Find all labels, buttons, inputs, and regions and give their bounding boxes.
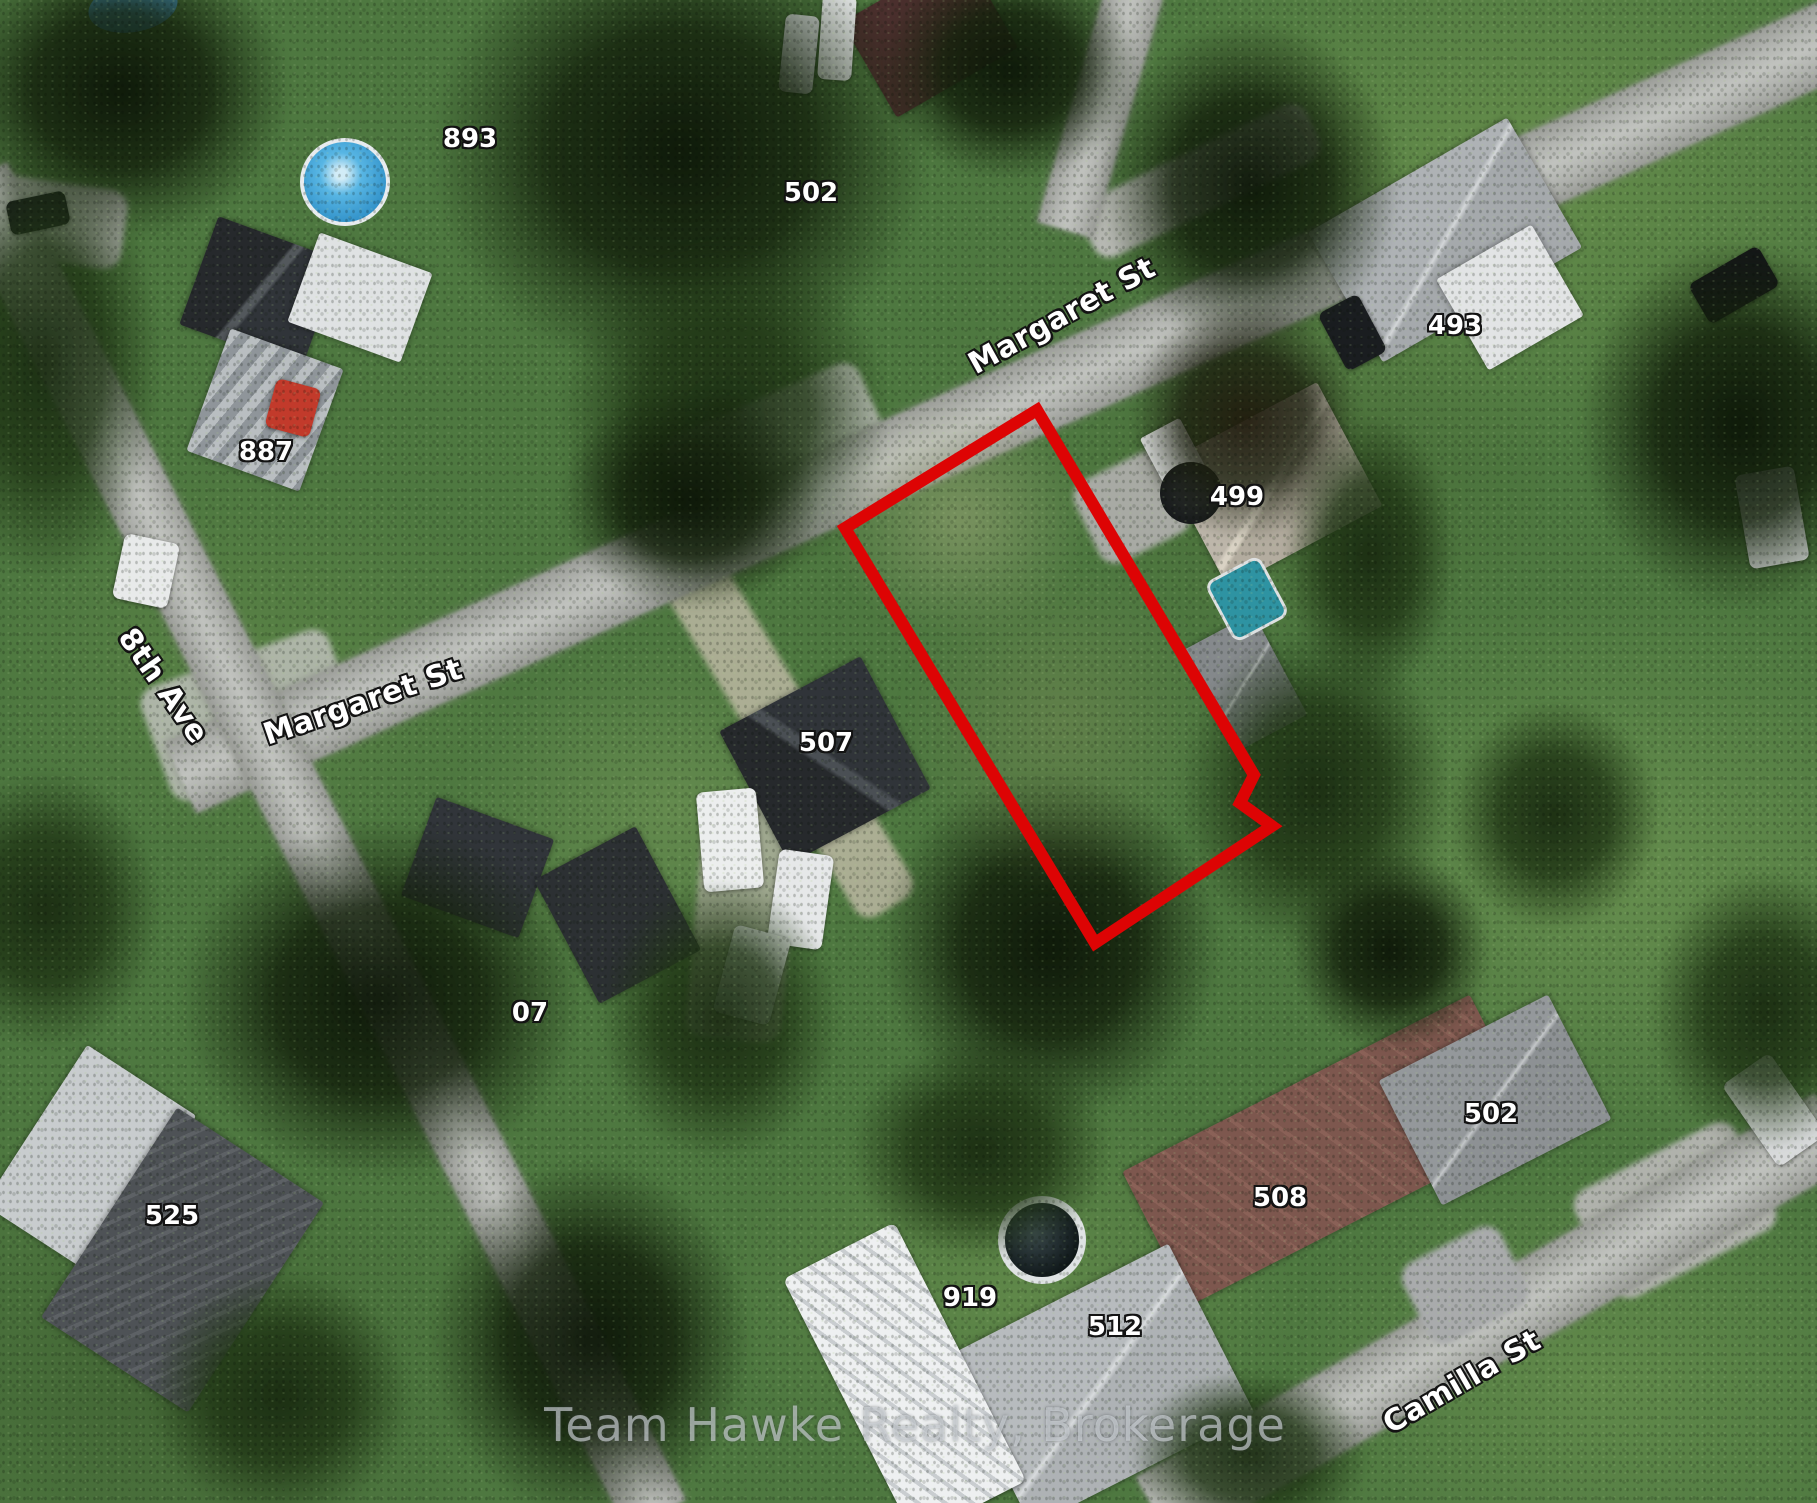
satellite-map: Margaret StMargaret St8th AveCamilla St8… [0,0,1817,1503]
white-rv [696,788,764,893]
tree-cluster [150,1270,410,1503]
tree-cluster [430,1160,750,1503]
blue-pool [300,138,390,226]
roof-887-metal [186,328,343,491]
tree-cluster [1650,870,1817,1150]
tree-cluster [1450,700,1660,930]
tree-cluster [0,770,160,1050]
house-number-label: 919 [943,1283,997,1313]
tree-cluster [1580,240,1817,610]
lot-scrub [900,560,1220,890]
tree-cluster [1290,850,1490,1050]
